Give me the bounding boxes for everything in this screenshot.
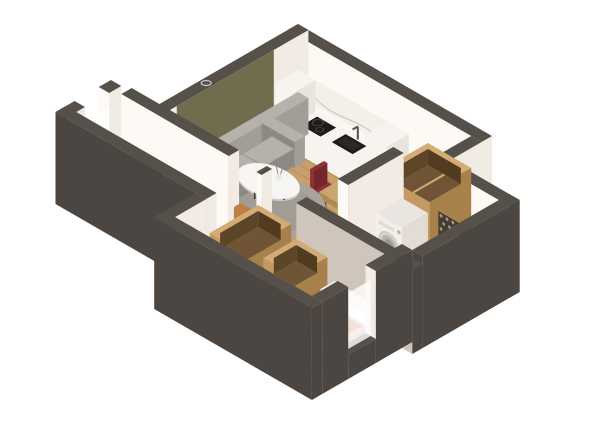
apartment-3d-floor-plan [0, 0, 600, 446]
floor-plan-image [0, 0, 600, 446]
